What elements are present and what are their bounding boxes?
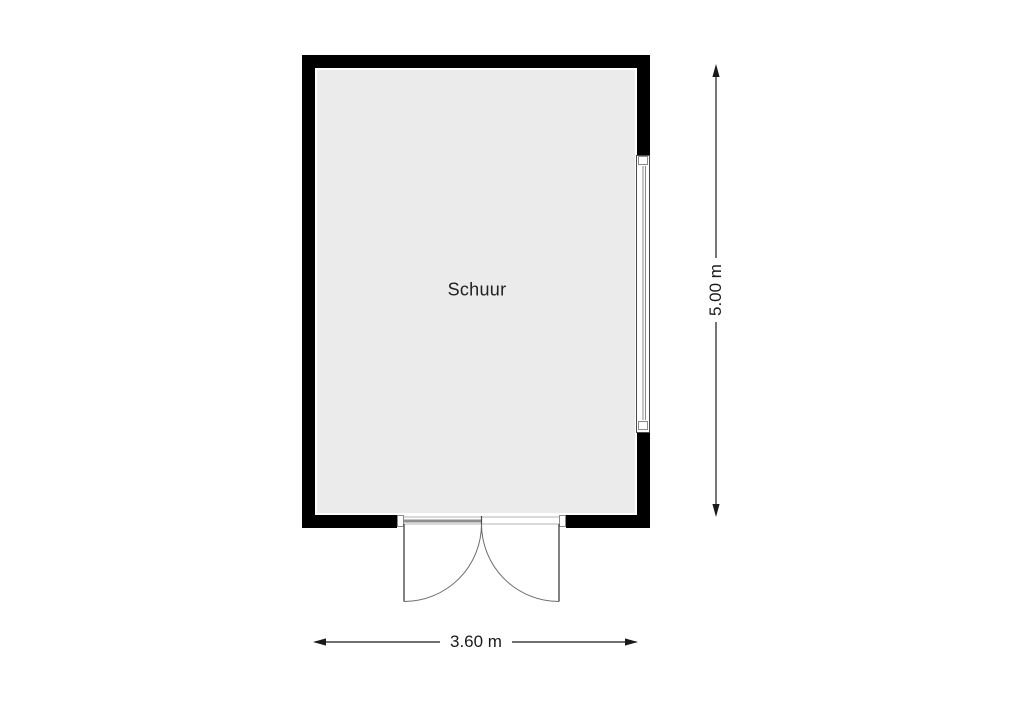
window-frame-cap-top xyxy=(638,156,648,165)
arrow-right-icon xyxy=(625,638,638,645)
arrow-down-icon xyxy=(712,504,719,517)
floorplan-page: Schuur 5.00 m 3.60 m xyxy=(0,0,1024,702)
door-opening xyxy=(397,514,566,528)
window-right-wall xyxy=(636,155,650,433)
height-dimension-label: 5.00 m xyxy=(684,258,748,322)
width-dimension-label: 3.60 m xyxy=(440,629,512,655)
room-label: Schuur xyxy=(448,280,507,301)
double-door-symbol xyxy=(404,524,559,602)
window-frame-cap-bottom xyxy=(638,421,648,430)
door-jamb-right xyxy=(559,515,566,527)
arrow-up-icon xyxy=(712,64,719,77)
door-swing-arc-right xyxy=(482,524,560,602)
door-swing-arc-left xyxy=(404,524,482,602)
door-jamb-left xyxy=(397,515,404,527)
arrow-left-icon xyxy=(313,638,326,645)
